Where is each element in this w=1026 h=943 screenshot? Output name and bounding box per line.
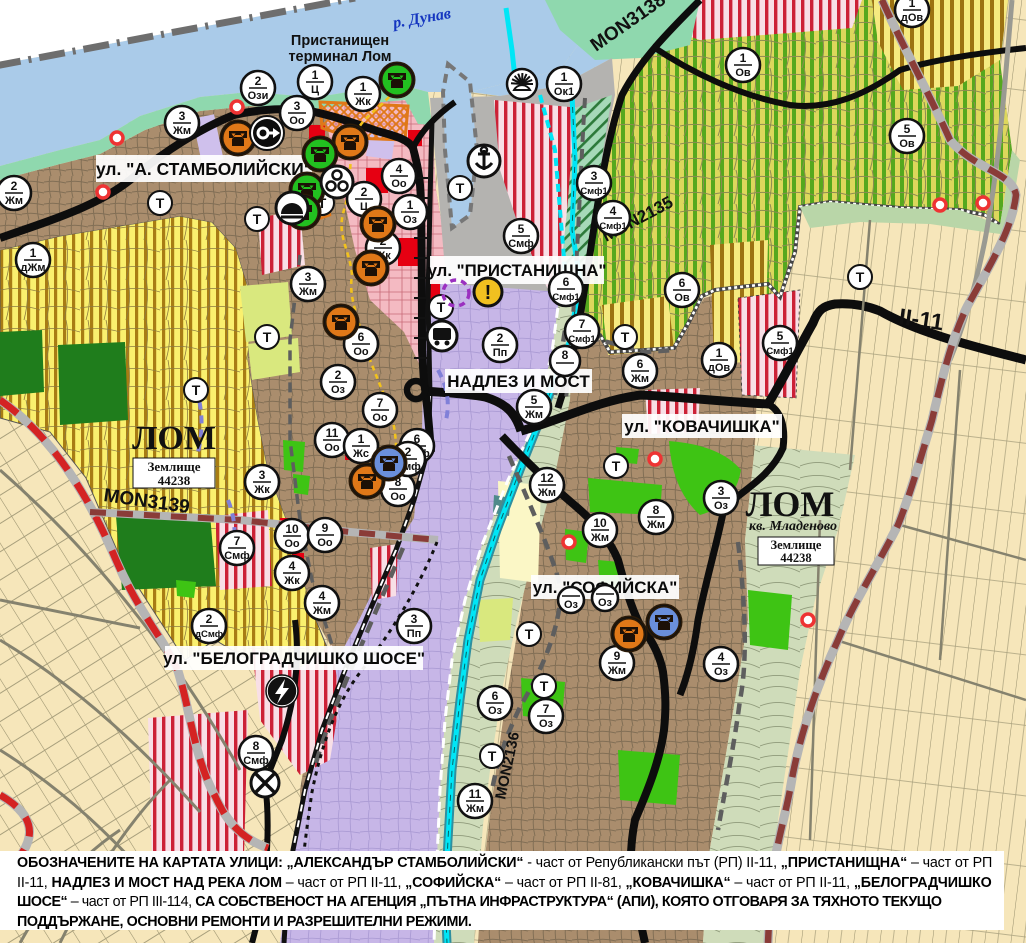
svg-text:Оз: Оз xyxy=(714,500,729,512)
svg-text:2: 2 xyxy=(497,331,504,345)
svg-text:3: 3 xyxy=(718,484,725,498)
svg-text:Жм: Жм xyxy=(298,286,317,298)
svg-text:T: T xyxy=(437,299,446,315)
svg-text:5: 5 xyxy=(777,329,784,343)
svg-text:Пристанищен: Пристанищен xyxy=(291,33,389,49)
svg-text:Жм: Жм xyxy=(537,487,556,499)
svg-text:Ов: Ов xyxy=(899,138,915,150)
svg-text:2: 2 xyxy=(361,185,368,199)
svg-text:1: 1 xyxy=(30,246,37,260)
svg-text:Пп: Пп xyxy=(407,628,422,640)
svg-text:44238: 44238 xyxy=(780,551,811,565)
svg-text:T: T xyxy=(192,382,201,398)
svg-text:ул. "А. СТАМБОЛИЙСКИ": ул. "А. СТАМБОЛИЙСКИ" xyxy=(96,159,312,179)
svg-text:Смф: Смф xyxy=(508,238,534,250)
svg-text:Жм: Жм xyxy=(590,532,609,544)
svg-text:Оо: Оо xyxy=(289,115,305,127)
svg-text:Жк: Жк xyxy=(354,96,371,108)
svg-text:9: 9 xyxy=(322,521,329,535)
svg-text:T: T xyxy=(856,269,865,285)
svg-text:3: 3 xyxy=(411,612,418,626)
svg-text:дОв: дОв xyxy=(708,362,731,374)
svg-text:Жм: Жм xyxy=(312,605,331,617)
svg-text:Смф1: Смф1 xyxy=(568,334,596,345)
svg-text:T: T xyxy=(253,211,262,227)
svg-text:11: 11 xyxy=(469,787,482,801)
svg-text:терминал Лом: терминал Лом xyxy=(288,49,391,65)
svg-text:Смф1: Смф1 xyxy=(552,292,580,303)
svg-text:Жм: Жм xyxy=(646,519,665,531)
svg-text:1: 1 xyxy=(909,0,916,10)
svg-text:T: T xyxy=(540,678,549,694)
svg-text:T: T xyxy=(456,180,465,196)
svg-text:T: T xyxy=(621,329,630,345)
svg-text:4: 4 xyxy=(610,204,617,218)
svg-text:Оз: Оз xyxy=(714,666,729,678)
svg-text:дОв: дОв xyxy=(901,12,924,24)
svg-text:Жм: Жм xyxy=(4,195,23,207)
svg-text:8: 8 xyxy=(253,739,260,753)
svg-text:Жм: Жм xyxy=(524,409,543,421)
svg-text:3: 3 xyxy=(305,270,312,284)
svg-text:T: T xyxy=(525,626,534,642)
svg-text:дЖм: дЖм xyxy=(20,262,45,274)
svg-text:Землище: Землище xyxy=(147,459,200,474)
svg-text:5: 5 xyxy=(904,122,911,136)
svg-text:1: 1 xyxy=(561,70,568,84)
svg-text:Смф1: Смф1 xyxy=(766,346,794,357)
svg-text:1: 1 xyxy=(716,346,723,360)
svg-text:Оо: Оо xyxy=(284,538,300,550)
svg-text:!: ! xyxy=(485,282,492,304)
svg-text:ул. "КОВАЧИШКА": ул. "КОВАЧИШКА" xyxy=(624,417,780,436)
svg-text:Ц: Ц xyxy=(311,84,319,96)
svg-text:2: 2 xyxy=(255,74,262,88)
svg-text:10: 10 xyxy=(285,522,299,536)
svg-text:Оз: Оз xyxy=(488,705,503,717)
svg-text:7: 7 xyxy=(234,534,241,548)
svg-text:11: 11 xyxy=(326,426,339,440)
svg-text:7: 7 xyxy=(377,396,384,410)
svg-text:кв. Младеново: кв. Младеново xyxy=(749,519,837,534)
svg-text:ЛОМ: ЛОМ xyxy=(132,420,216,457)
svg-text:Землище: Землище xyxy=(771,538,822,552)
svg-text:6: 6 xyxy=(563,275,570,289)
svg-text:Ок1: Ок1 xyxy=(554,86,574,98)
svg-text:Оо: Оо xyxy=(390,491,406,503)
svg-text:2: 2 xyxy=(11,179,18,193)
svg-text:8: 8 xyxy=(562,348,569,362)
svg-text:1: 1 xyxy=(312,68,319,82)
svg-text:Смф1: Смф1 xyxy=(580,186,608,197)
svg-text:Ов: Ов xyxy=(735,67,751,79)
svg-text:6: 6 xyxy=(679,276,686,290)
svg-text:6: 6 xyxy=(637,357,644,371)
svg-text:3: 3 xyxy=(294,99,301,113)
svg-text:4: 4 xyxy=(289,559,296,573)
svg-text:6: 6 xyxy=(358,330,365,344)
svg-text:Смф1: Смф1 xyxy=(599,221,627,232)
svg-text:Оз: Оз xyxy=(564,599,579,611)
svg-text:3: 3 xyxy=(259,468,266,482)
svg-text:T: T xyxy=(612,458,621,474)
svg-text:1: 1 xyxy=(740,51,747,65)
svg-text:T: T xyxy=(156,195,165,211)
svg-text:4: 4 xyxy=(319,589,326,603)
svg-text:7: 7 xyxy=(543,702,550,716)
svg-text:4: 4 xyxy=(718,650,725,664)
svg-text:2: 2 xyxy=(206,612,213,626)
svg-text:Оо: Оо xyxy=(353,346,369,358)
svg-text:Оз: Оз xyxy=(598,597,613,609)
svg-text:Жм: Жм xyxy=(630,373,649,385)
svg-text:10: 10 xyxy=(593,516,607,530)
svg-text:1: 1 xyxy=(407,198,414,212)
svg-text:T: T xyxy=(263,329,272,345)
svg-text:Пп: Пп xyxy=(493,347,508,359)
svg-text:6: 6 xyxy=(492,689,499,703)
svg-text:Жк: Жк xyxy=(253,484,270,496)
svg-text:12: 12 xyxy=(540,471,554,485)
svg-text:ЛОМ: ЛОМ xyxy=(746,484,835,524)
svg-text:Оз: Оз xyxy=(331,384,346,396)
svg-text:Жм: Жм xyxy=(607,665,626,677)
svg-text:Оо: Оо xyxy=(324,442,340,454)
svg-text:3: 3 xyxy=(179,109,186,123)
svg-text:Жк: Жк xyxy=(283,575,300,587)
svg-text:2: 2 xyxy=(335,368,342,382)
svg-text:Смф: Смф xyxy=(224,550,250,562)
svg-text:Оо: Оо xyxy=(391,178,407,190)
svg-text:ул. "БЕЛОГРАДЧИШКО ШОСЕ": ул. "БЕЛОГРАДЧИШКО ШОСЕ" xyxy=(163,649,425,668)
svg-text:1: 1 xyxy=(360,80,367,94)
svg-text:дСмф: дСмф xyxy=(195,629,223,640)
svg-text:5: 5 xyxy=(531,393,538,407)
svg-text:Ов: Ов xyxy=(674,292,690,304)
svg-text:Жс: Жс xyxy=(352,448,369,460)
svg-text:Оо: Оо xyxy=(372,412,388,424)
svg-text:Оз: Оз xyxy=(403,214,418,226)
svg-text:44238: 44238 xyxy=(158,473,191,488)
svg-text:5: 5 xyxy=(518,222,525,236)
svg-text:9: 9 xyxy=(614,649,621,663)
svg-text:Жм: Жм xyxy=(465,803,484,815)
svg-text:7: 7 xyxy=(579,317,586,331)
svg-text:T: T xyxy=(488,748,497,764)
svg-text:1: 1 xyxy=(358,432,365,446)
svg-text:4: 4 xyxy=(396,162,403,176)
svg-text:Оо: Оо xyxy=(317,537,333,549)
svg-text:8: 8 xyxy=(653,503,660,517)
svg-text:Ози: Ози xyxy=(248,90,269,102)
svg-text:Оз: Оз xyxy=(539,718,554,730)
svg-text:Жм: Жм xyxy=(172,125,191,137)
svg-text:3: 3 xyxy=(591,169,598,183)
svg-text:Смф: Смф xyxy=(243,755,269,767)
